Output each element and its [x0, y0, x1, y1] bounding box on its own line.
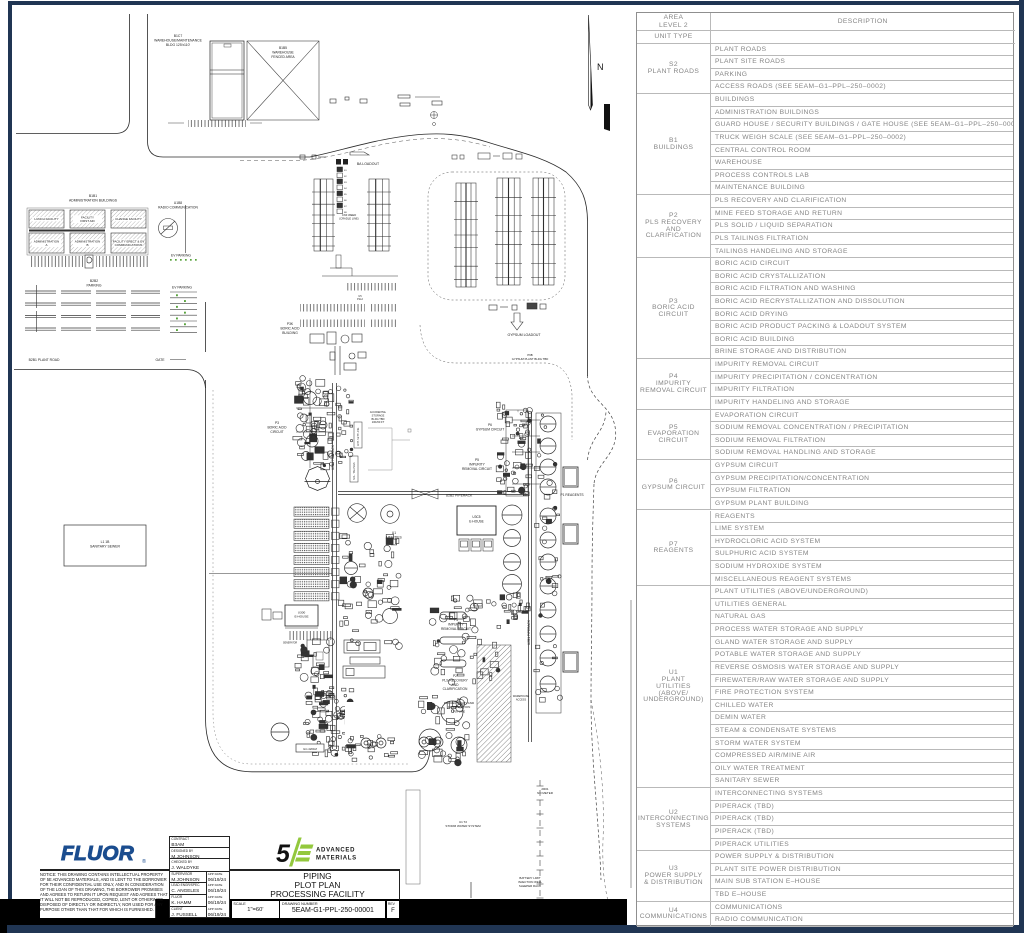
svg-text:U2B1 PIPERACK: U2B1 PIPERACK [527, 619, 531, 645]
svg-text:GENERATOR: GENERATOR [283, 642, 298, 645]
svg-text:AND: AND [452, 683, 460, 687]
svg-text:BA LOADOUT: BA LOADOUT [357, 162, 380, 166]
svg-text:P1 REAGENTS: P1 REAGENTS [560, 493, 584, 497]
svg-text:GYPSUM PLANT BLDG TBD: GYPSUM PLANT BLDG TBD [512, 357, 549, 361]
svg-text:B3: B3 [344, 182, 347, 184]
svg-text:FIRST AID: FIRST AID [80, 219, 95, 223]
svg-text:GC-4201M: GC-4201M [303, 747, 317, 751]
svg-text:ADVANCED: ADVANCED [316, 848, 355, 854]
svg-text:CNF WEED: CNF WEED [342, 213, 356, 217]
svg-text:(CRADLE LINE): (CRADLE LINE) [339, 217, 359, 221]
svg-text:NO METER: NO METER [537, 791, 554, 795]
svg-text:BLDG TBD: BLDG TBD [372, 417, 385, 421]
svg-text:MATERIALS: MATERIALS [316, 856, 357, 862]
svg-text:▽: ▽ [517, 409, 520, 413]
svg-text:COMMUNICATIONS: COMMUNICATIONS [115, 243, 143, 247]
svg-text:PARKING: PARKING [86, 284, 101, 288]
svg-text:A: A [45, 243, 47, 247]
svg-text:B: B [86, 243, 88, 247]
svg-text:RADIO COMMUNICATION: RADIO COMMUNICATION [158, 205, 198, 209]
svg-text:P3: P3 [275, 421, 279, 425]
svg-text:P6: P6 [488, 423, 492, 427]
svg-text:CHANGE FACILITY: CHANGE FACILITY [115, 217, 142, 221]
svg-text:100x50 FT: 100x50 FT [372, 420, 385, 424]
svg-text:PLS RECOVERY: PLS RECOVERY [442, 678, 468, 682]
svg-text:GYPSUM CIRCUIT: GYPSUM CIRCUIT [476, 427, 505, 431]
svg-text:B2B1 PLANT ROAD: B2B1 PLANT ROAD [29, 358, 60, 362]
svg-text:GYPSUM LOADOUT: GYPSUM LOADOUT [507, 333, 541, 337]
svg-text:CIRCUIT: CIRCUIT [270, 430, 283, 434]
svg-text:E-HOUSE: E-HOUSE [469, 519, 484, 523]
svg-text:5: 5 [276, 840, 291, 868]
svg-text:BORIC ACID: BORIC ACID [267, 425, 287, 429]
svg-text:CLARIFICATION: CLARIFICATION [443, 687, 468, 691]
svg-text:ACCIDENTAL: ACCIDENTAL [370, 410, 387, 414]
svg-text:P5: P5 [475, 458, 479, 462]
svg-text:FENCED AREA: FENCED AREA [271, 55, 295, 59]
svg-text:BORIC ACID: BORIC ACID [280, 326, 300, 330]
svg-text:BLDG 125'x110': BLDG 125'x110' [166, 43, 191, 47]
svg-text:STORM WATER SYSTEM: STORM WATER SYSTEM [445, 824, 481, 828]
svg-text:B1C7: B1C7 [174, 34, 183, 38]
svg-text:P2: P2 [453, 674, 457, 678]
svg-text:SOL. TAILINGS: SOL. TAILINGS [353, 462, 356, 480]
svg-text:N: N [597, 62, 604, 72]
svg-text:LUNCH FACILITY: LUNCH FACILITY [34, 217, 58, 221]
svg-text:SANITARY SEWER: SANITARY SEWER [90, 545, 121, 549]
svg-text:U2B2 PIPERACK: U2B2 PIPERACK [446, 494, 473, 498]
svg-text:BUILDING: BUILDING [282, 331, 298, 335]
svg-text:IMPURITY: IMPURITY [469, 462, 486, 466]
svg-text:EV PARKING: EV PARKING [171, 254, 191, 258]
svg-text:WAREHOUSE/MAINTENANCE: WAREHOUSE/MAINTENANCE [154, 39, 202, 43]
svg-text:STORAGE: STORAGE [372, 413, 385, 417]
svg-text:E-HOUSE: E-HOUSE [294, 615, 308, 619]
svg-text:B1B5: B1B5 [279, 46, 287, 50]
svg-text:B2B2: B2B2 [90, 279, 98, 283]
svg-text:ADMINISTRATION BUILDINGS: ADMINISTRATION BUILDINGS [69, 199, 118, 203]
svg-text:FUTURE: FUTURE [453, 709, 465, 713]
svg-text:B6: B6 [344, 200, 347, 202]
svg-text:WAREHOUSE: WAREHOUSE [272, 50, 294, 54]
svg-text:IMPURITY: IMPURITY [448, 622, 465, 626]
svg-text:REMOVAL CIRCUIT: REMOVAL CIRCUIT [462, 467, 492, 471]
svg-text:B1: B1 [344, 170, 347, 172]
svg-text:B7: B7 [344, 206, 347, 208]
svg-text:B1B1: B1B1 [89, 194, 97, 198]
svg-text:EV PARKING: EV PARKING [172, 286, 192, 290]
svg-text:ACCESS: ACCESS [516, 698, 527, 701]
svg-text:ANT. SETTLING: ANT. SETTLING [357, 428, 360, 446]
svg-text:P3K: P3K [287, 322, 294, 326]
svg-text:L1 1B: L1 1B [101, 540, 111, 544]
svg-text:B2: B2 [344, 176, 347, 178]
svg-text:P1L2: P1L2 [357, 298, 363, 301]
svg-text:GATE: GATE [156, 358, 166, 362]
svg-text:B4: B4 [344, 188, 347, 190]
svg-text:B5: B5 [344, 194, 347, 196]
svg-text:U1B8: U1B8 [174, 201, 182, 205]
